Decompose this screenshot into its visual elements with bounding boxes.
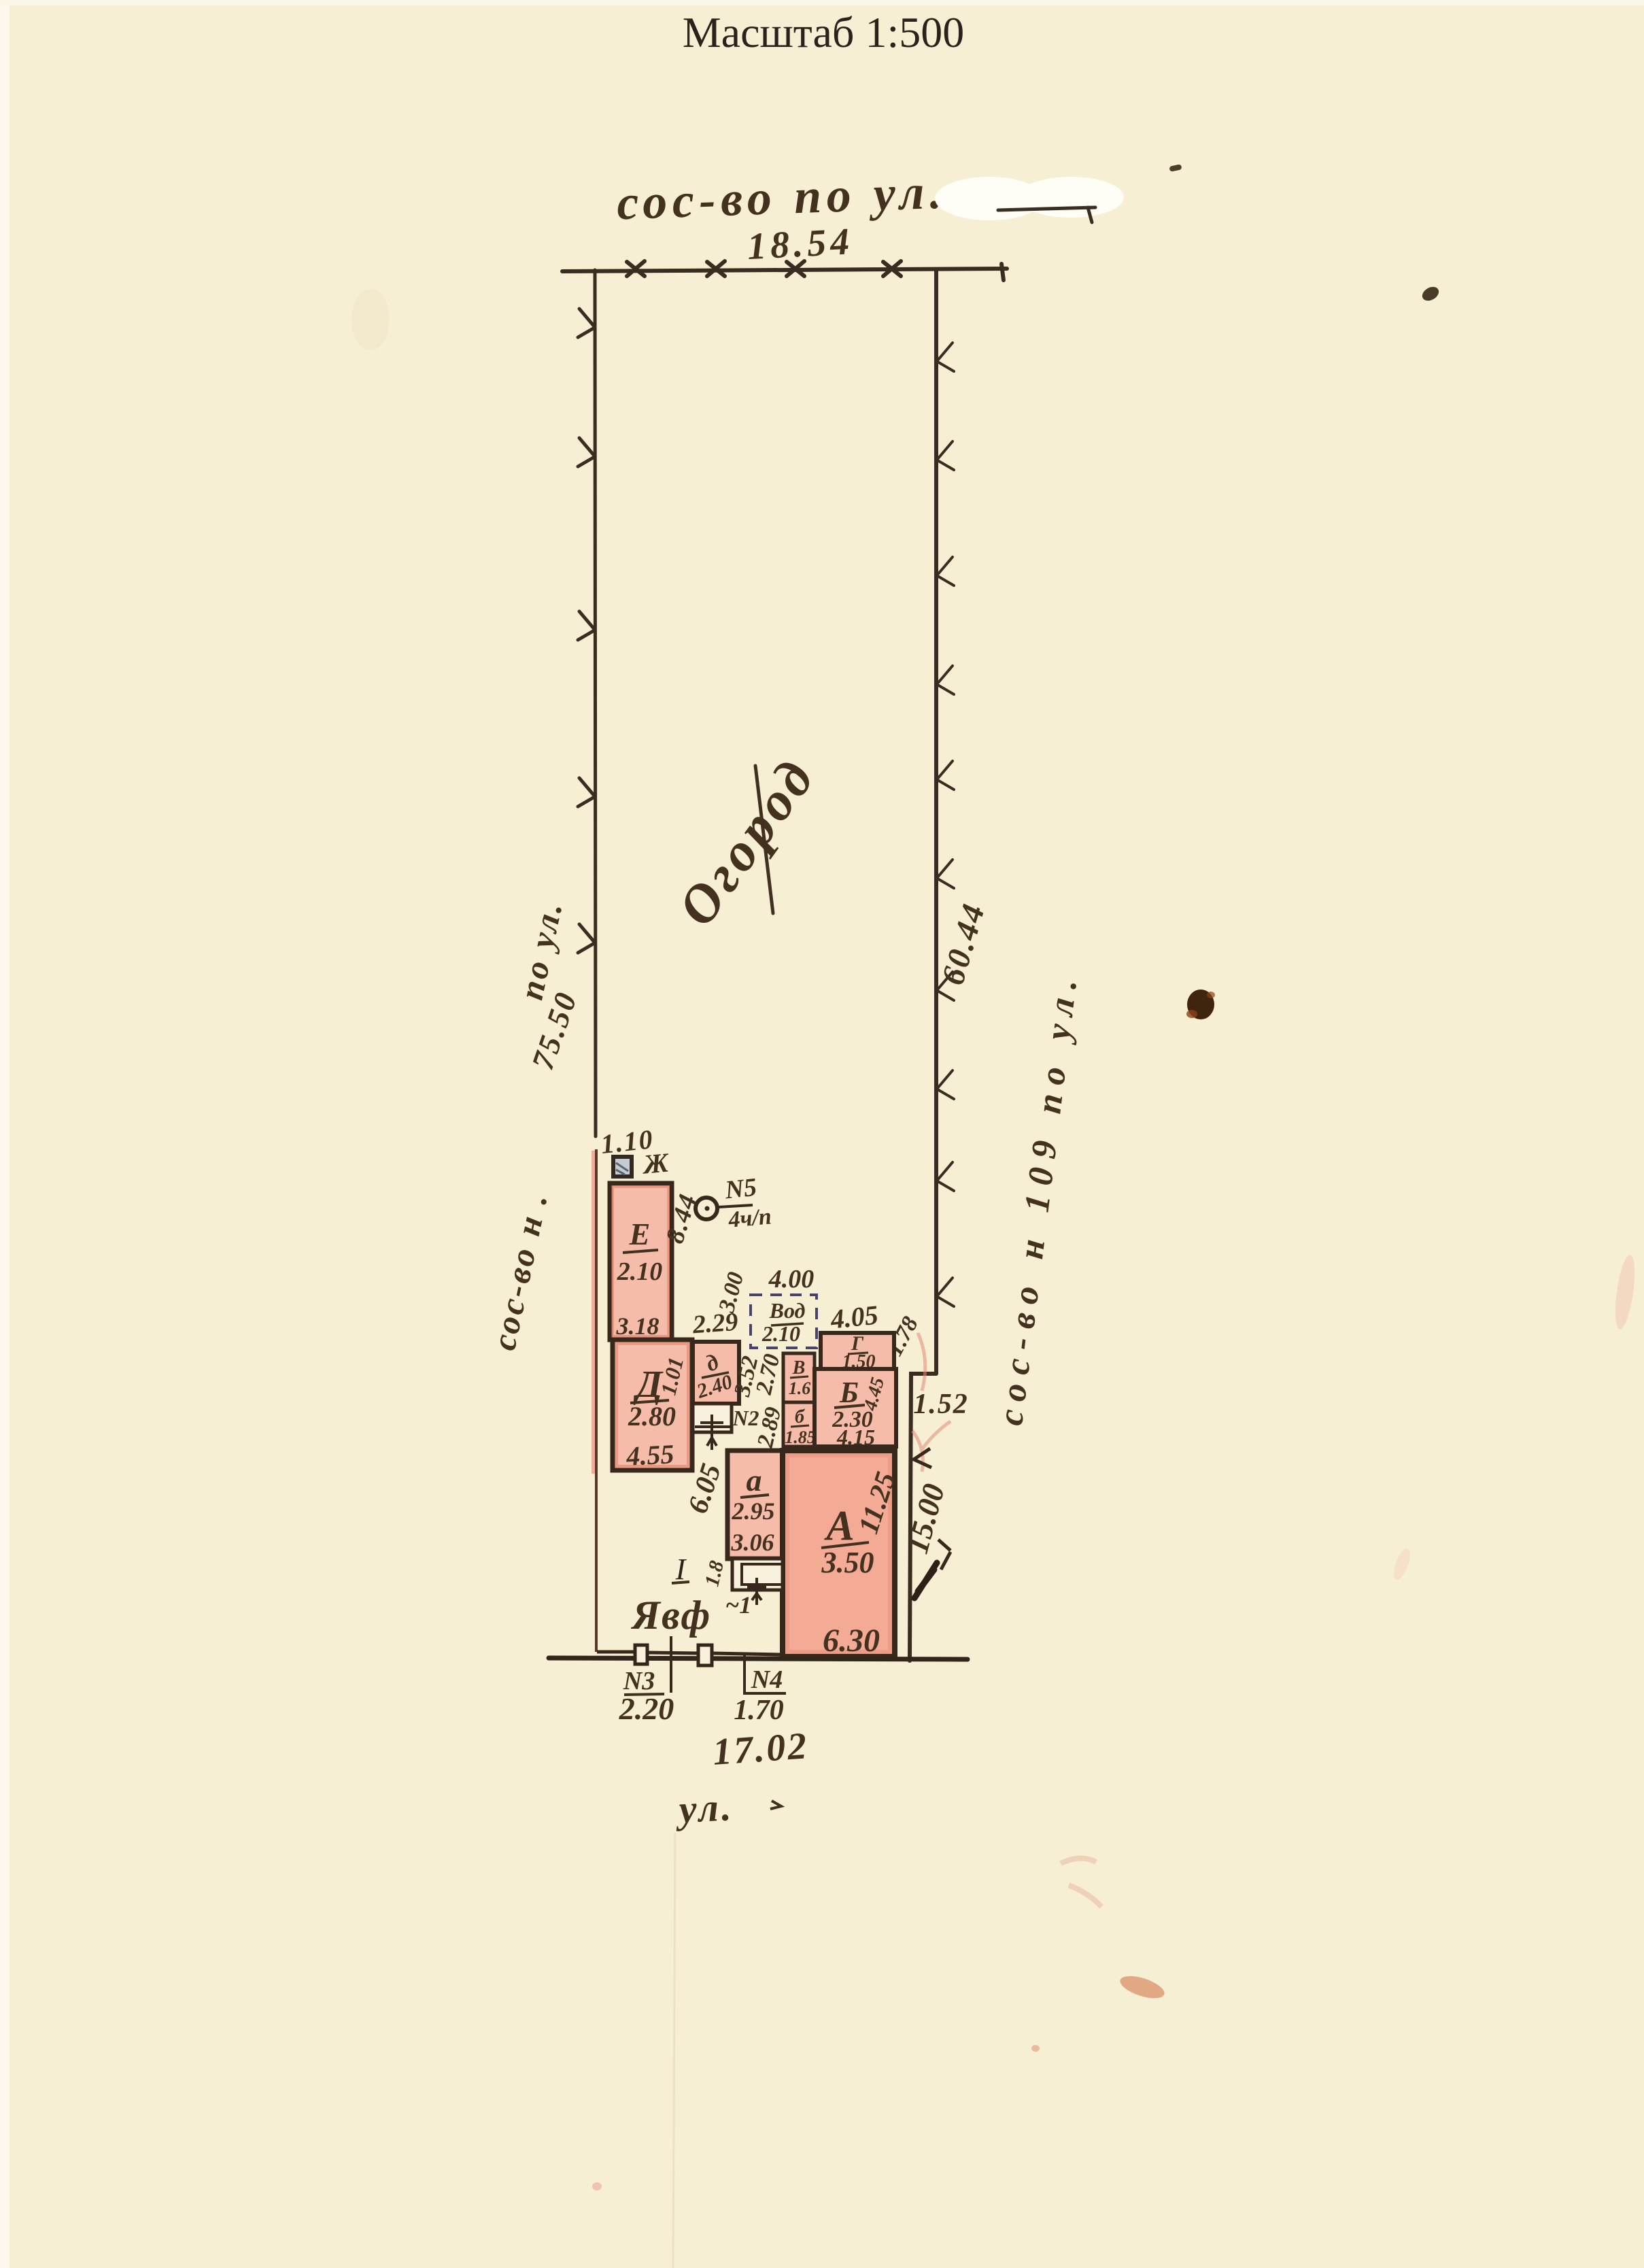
svg-text:Е: Е: [629, 1217, 651, 1251]
svg-text:Вод: Вод: [769, 1298, 806, 1323]
svg-text:~1: ~1: [725, 1591, 752, 1619]
svg-text:2.95: 2.95: [732, 1497, 775, 1525]
svg-text:N2: N2: [732, 1406, 759, 1430]
svg-text:1.6: 1.6: [789, 1378, 811, 1398]
svg-text:17.02: 17.02: [711, 1725, 810, 1774]
svg-text:4.05: 4.05: [828, 1300, 879, 1335]
svg-text:2.20: 2.20: [619, 1691, 674, 1726]
svg-text:1.52: 1.52: [913, 1389, 969, 1420]
svg-text:Масштаб 1:500: Масштаб 1:500: [683, 8, 965, 56]
svg-text:2.10: 2.10: [617, 1257, 663, 1286]
svg-text:Б: Б: [839, 1376, 859, 1409]
svg-text:а: а: [747, 1463, 762, 1497]
svg-text:4ч/п: 4ч/п: [727, 1204, 772, 1232]
svg-text:А: А: [823, 1503, 854, 1549]
svg-text:4.55: 4.55: [625, 1438, 674, 1472]
svg-text:2.80: 2.80: [628, 1401, 676, 1432]
svg-text:1.70: 1.70: [734, 1695, 784, 1726]
svg-text:б: б: [795, 1406, 805, 1427]
svg-text:4.00: 4.00: [768, 1265, 815, 1293]
svg-text:18.54: 18.54: [747, 220, 855, 268]
svg-text:2.29: 2.29: [691, 1308, 739, 1340]
svg-text:4.15: 4.15: [836, 1425, 875, 1449]
svg-text:N5: N5: [723, 1173, 758, 1205]
svg-text:3.06: 3.06: [731, 1529, 774, 1556]
svg-text:1.85: 1.85: [785, 1427, 816, 1447]
svg-text:ул.: ул.: [674, 1784, 735, 1831]
svg-text:Явф: Явф: [631, 1593, 712, 1638]
svg-text:2.10: 2.10: [761, 1321, 800, 1346]
svg-text:6.30: 6.30: [823, 1623, 880, 1659]
svg-text:3.50: 3.50: [821, 1546, 874, 1579]
svg-text:N4: N4: [751, 1665, 783, 1694]
svg-text:Ж: Ж: [640, 1147, 671, 1179]
svg-text:3.18: 3.18: [616, 1313, 660, 1340]
svg-text:В: В: [792, 1357, 806, 1378]
